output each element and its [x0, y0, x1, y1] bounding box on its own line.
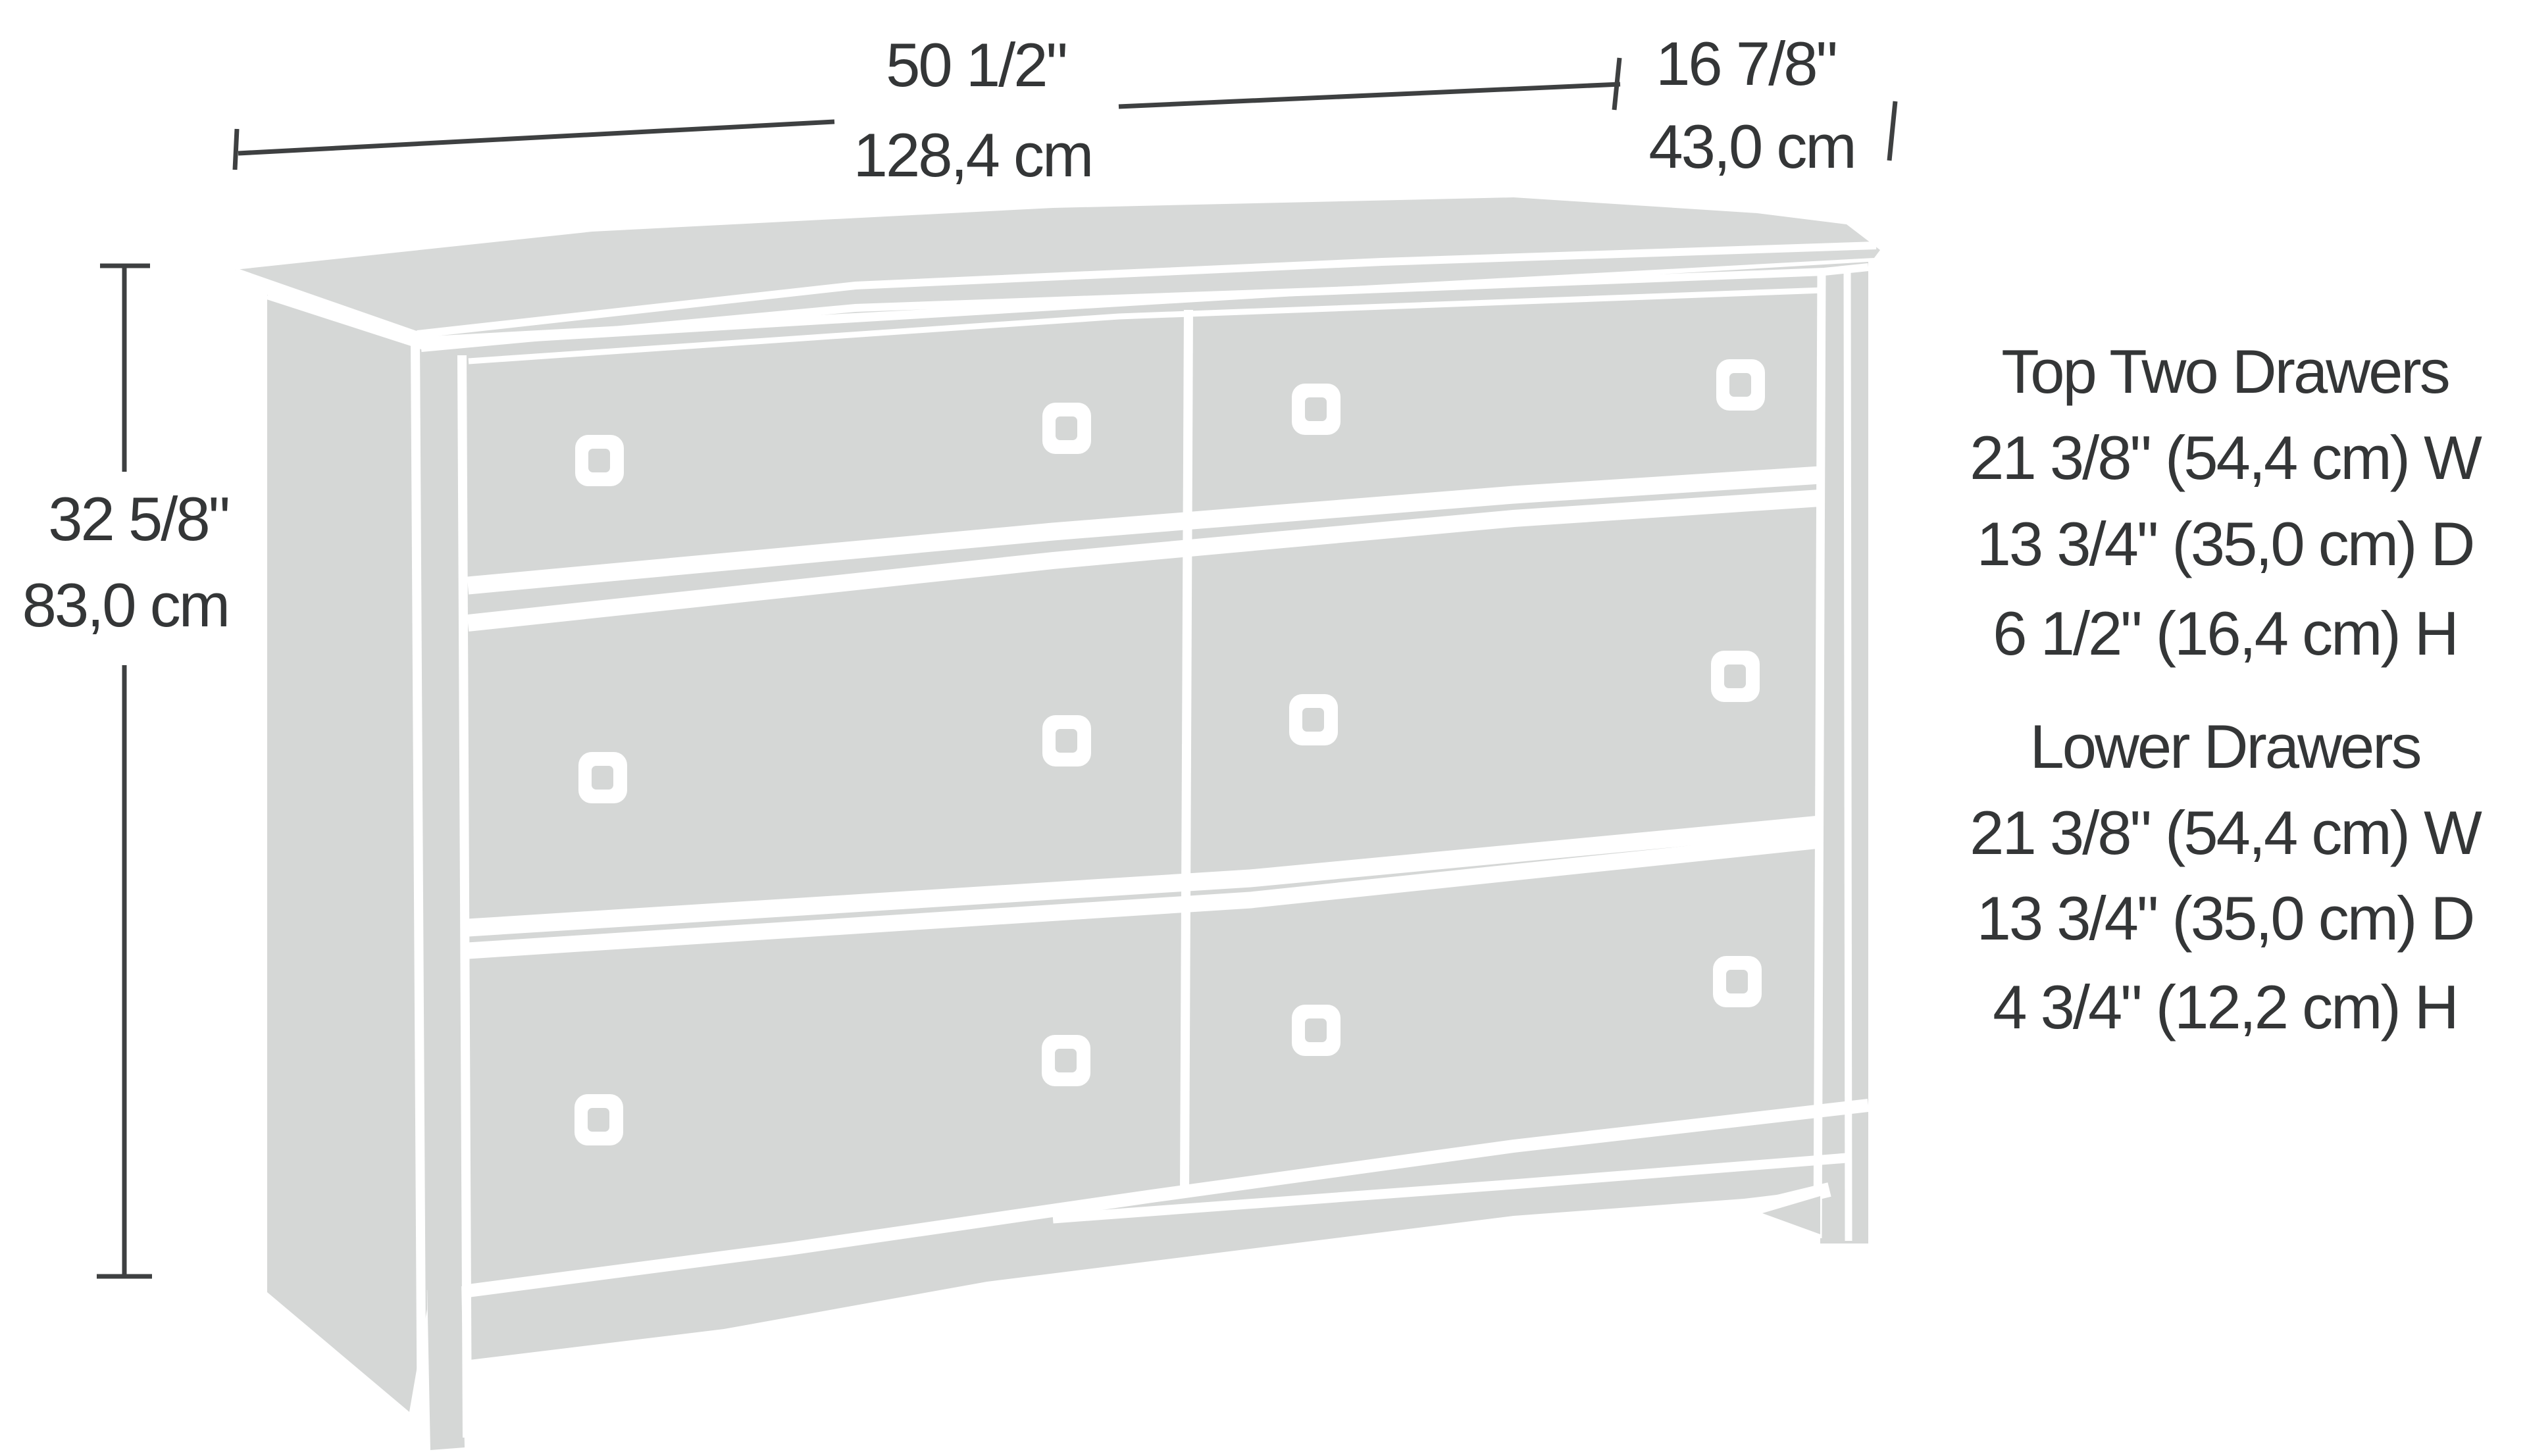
svg-text:13 3/4" (35,0 cm) D: 13 3/4" (35,0 cm) D — [1977, 884, 2474, 953]
svg-text:6 1/2" (16,4 cm) H: 6 1/2" (16,4 cm) H — [1993, 599, 2457, 668]
svg-text:4 3/4" (12,2 cm) H: 4 3/4" (12,2 cm) H — [1993, 972, 2457, 1042]
svg-text:13 3/4" (35,0 cm) D: 13 3/4" (35,0 cm) D — [1977, 509, 2474, 578]
svg-text:21 3/8" (54,4 cm) W: 21 3/8" (54,4 cm) W — [1970, 798, 2482, 867]
svg-text:16 7/8": 16 7/8" — [1656, 29, 1836, 98]
svg-text:43,0 cm: 43,0 cm — [1648, 112, 1854, 181]
svg-text:50 1/2": 50 1/2" — [886, 30, 1066, 99]
svg-text:Lower Drawers: Lower Drawers — [2029, 712, 2420, 781]
svg-text:Top Two Drawers: Top Two Drawers — [2001, 337, 2448, 406]
svg-text:21 3/8" (54,4 cm) W: 21 3/8" (54,4 cm) W — [1970, 423, 2482, 492]
svg-text:83,0 cm: 83,0 cm — [22, 570, 228, 640]
svg-text:128,4 cm: 128,4 cm — [854, 120, 1092, 189]
svg-text:32 5/8": 32 5/8" — [48, 484, 228, 553]
